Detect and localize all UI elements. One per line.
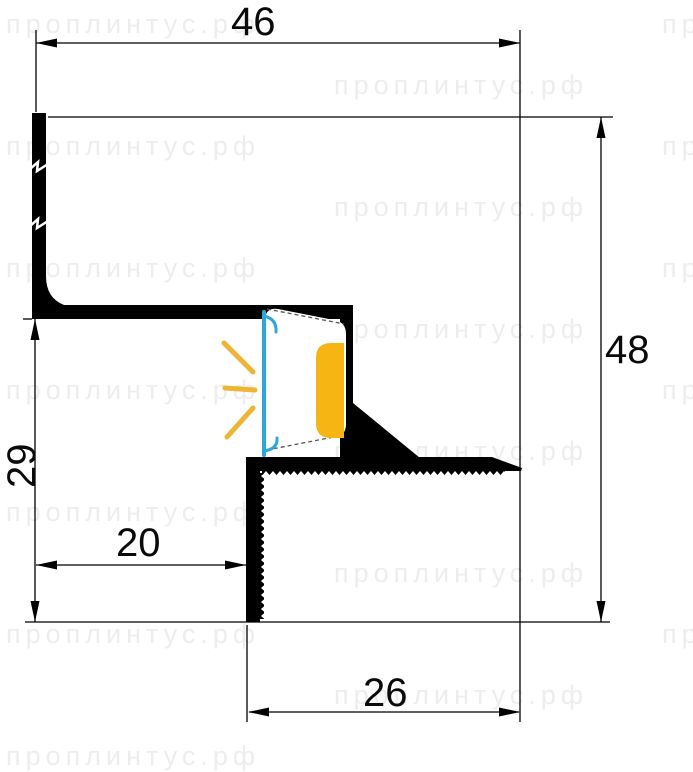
arrow-down-icon — [31, 601, 40, 622]
profile-bottom-flange — [260, 457, 522, 471]
arrow-down-icon — [597, 601, 606, 622]
light-ray — [225, 388, 255, 390]
profile-drawing: 46 48 29 20 26 — [0, 0, 693, 762]
light-ray — [227, 408, 253, 437]
arrow-right-icon — [499, 708, 520, 717]
dim-label-top-width: 46 — [231, 0, 276, 44]
dim-label-right-height: 48 — [605, 328, 650, 372]
led-lamp — [316, 343, 344, 438]
profile-lower-wall — [246, 457, 260, 622]
arrow-left-icon — [36, 39, 57, 48]
lower-wall-serration — [259, 473, 264, 619]
profile-right-wall-flare — [353, 403, 420, 458]
flange-serration — [262, 470, 505, 475]
led-module — [224, 309, 346, 455]
arrow-right-icon — [499, 39, 520, 48]
dim-label-left-height: 29 — [0, 444, 44, 489]
profile-left-wall — [32, 113, 46, 310]
light-rays-icon — [224, 343, 255, 437]
arrow-up-icon — [597, 117, 606, 138]
dim-label-bottom-width: 26 — [363, 671, 408, 715]
arrow-left-icon — [248, 708, 269, 717]
light-ray — [224, 343, 253, 372]
dim-label-inner-width: 20 — [116, 521, 161, 565]
arrow-up-icon — [31, 319, 40, 340]
arrow-left-icon — [36, 561, 57, 570]
arrow-right-icon — [225, 561, 246, 570]
